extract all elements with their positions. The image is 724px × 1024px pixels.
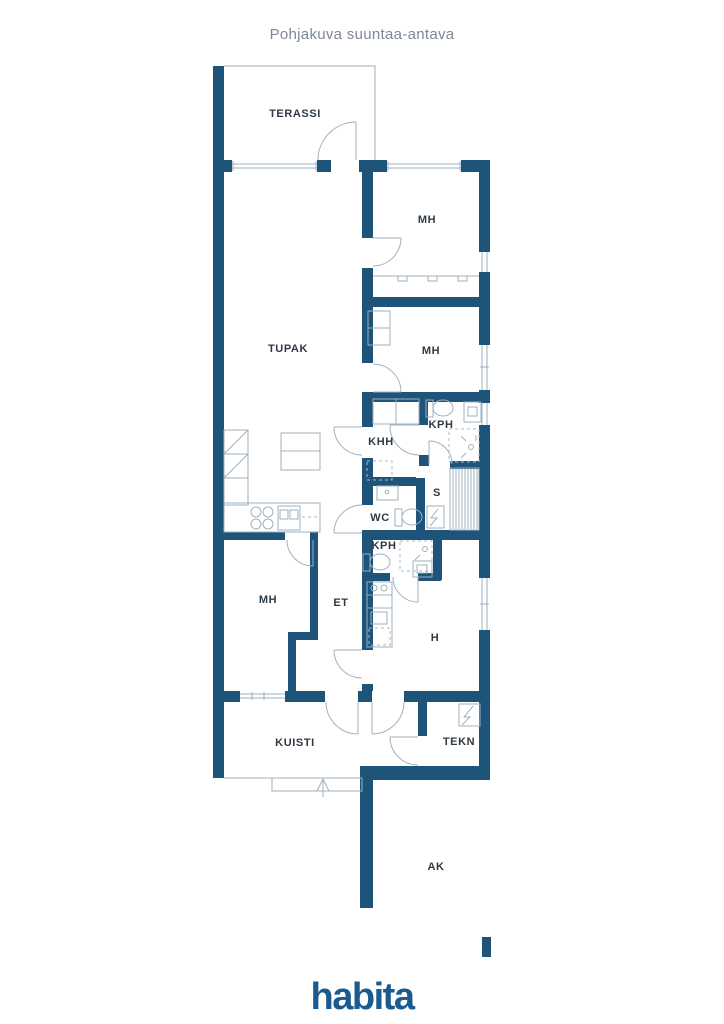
toilet-icon xyxy=(426,400,453,417)
door-arc xyxy=(390,425,419,455)
room-label-ak: AK xyxy=(427,861,444,873)
closet-line xyxy=(373,276,479,281)
room-label-terassi: TERASSI xyxy=(269,108,321,120)
door-arc xyxy=(318,122,356,160)
room-label-wc: WC xyxy=(370,512,390,524)
entrance-steps xyxy=(224,778,362,797)
door-arc xyxy=(326,702,358,734)
kitchen-fixtures xyxy=(224,430,320,532)
room-label-tekn: TEKN xyxy=(443,736,475,748)
sink-icon xyxy=(377,486,398,500)
window xyxy=(240,692,285,700)
kph-top-fixtures xyxy=(426,400,481,462)
stove-icon xyxy=(251,507,273,529)
room-label-et: ET xyxy=(333,597,348,609)
floorplan-page: Pohjakuva suuntaa-antava xyxy=(0,0,724,1024)
room-label-s: S xyxy=(433,487,441,499)
sink-icon xyxy=(464,402,481,422)
window xyxy=(232,161,317,171)
door-arc xyxy=(373,364,401,392)
brand-logo: habita xyxy=(0,976,724,1019)
floorplan-drawing: TERASSI MH TUPAK MH KHH KPH S WC KPH MH … xyxy=(0,0,724,1024)
door-arc xyxy=(390,737,418,765)
room-label-khh: KHH xyxy=(368,436,394,448)
door-arc xyxy=(287,540,313,566)
room-label-mh-mid: MH xyxy=(422,345,440,357)
room-label-h: H xyxy=(431,632,440,644)
sauna-stove-icon xyxy=(427,506,444,528)
window xyxy=(480,345,489,390)
door-arc xyxy=(334,650,362,678)
window xyxy=(482,252,487,272)
room-label-mh-top: MH xyxy=(418,214,436,226)
electrical-panel-icon xyxy=(459,704,480,726)
room-label-tupak: TUPAK xyxy=(268,343,308,355)
room-label-kuisti: KUISTI xyxy=(275,737,315,749)
door-arc xyxy=(393,577,418,602)
room-label-kph-bottom: KPH xyxy=(371,540,396,552)
window xyxy=(387,161,461,171)
door-arc xyxy=(373,238,401,266)
sink-icon xyxy=(278,506,300,530)
sauna-bench xyxy=(450,468,479,530)
wall-stub xyxy=(482,937,491,957)
door-arc xyxy=(334,505,362,533)
room-label-mh-bottom: MH xyxy=(259,594,277,606)
door-arc xyxy=(372,702,404,734)
window xyxy=(482,403,487,425)
sauna-fixtures xyxy=(427,468,479,530)
kitchen-island xyxy=(281,433,320,470)
door-arc xyxy=(334,427,362,455)
window xyxy=(480,578,489,630)
shower-area xyxy=(449,429,479,462)
room-label-kph-top: KPH xyxy=(428,419,453,431)
exterior-walls xyxy=(213,66,491,957)
